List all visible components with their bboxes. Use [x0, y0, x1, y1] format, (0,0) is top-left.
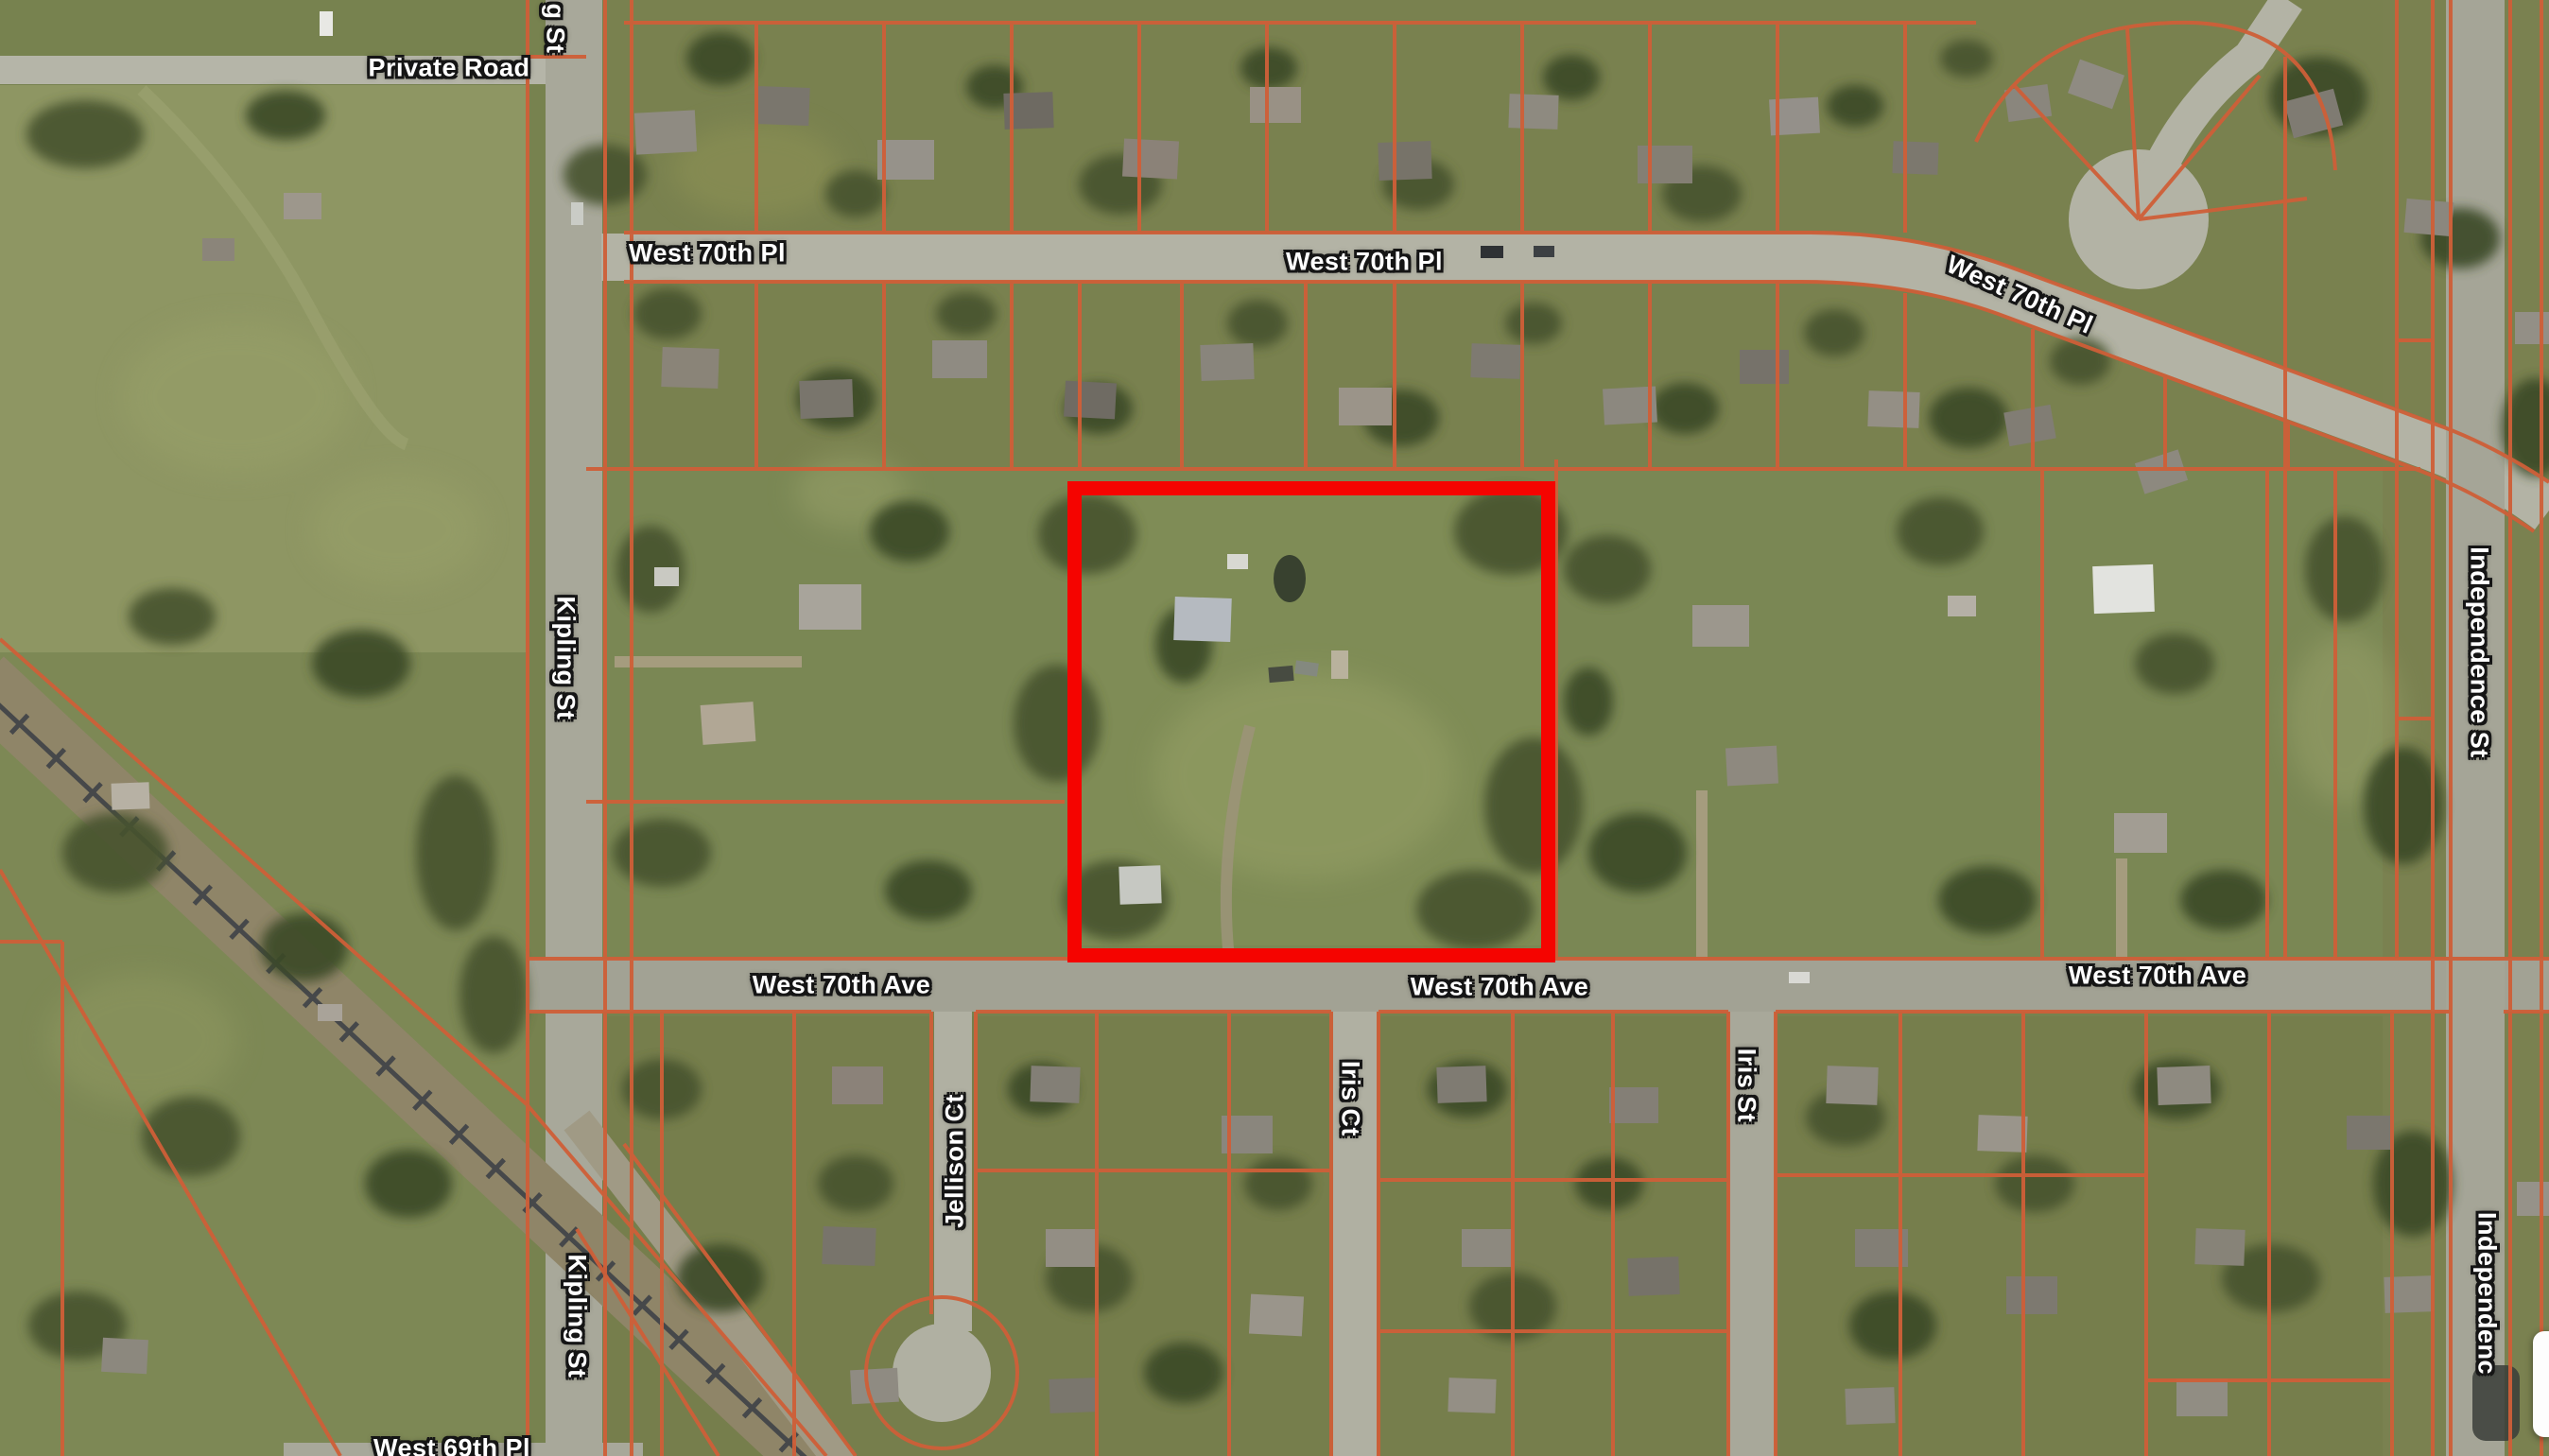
- highlighted-parcel[interactable]: [1067, 481, 1555, 962]
- map-canvas[interactable]: Private Roadg StWest 70th PlWest 70th Pl…: [0, 0, 2549, 1456]
- floating-control-edge[interactable]: [2533, 1331, 2549, 1437]
